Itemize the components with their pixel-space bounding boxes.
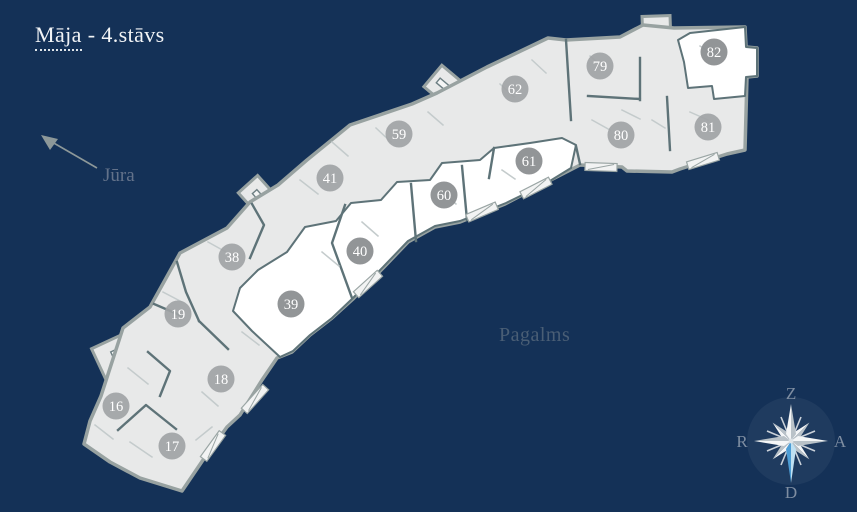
apartment-number: 81: [701, 120, 716, 136]
apartment-marker-59[interactable]: 59: [386, 121, 413, 148]
page-title: Māja - 4.stāvs: [35, 22, 165, 48]
apartment-number: 59: [392, 127, 407, 143]
sea-direction-arrow: [41, 135, 97, 168]
compass-label-south: D: [785, 483, 797, 502]
apartment-marker-61[interactable]: 61: [516, 148, 543, 175]
apartment-marker-16[interactable]: 16: [103, 393, 130, 420]
compass-rose: Z A D R: [736, 384, 847, 502]
apartment-number: 38: [225, 250, 240, 266]
compass-label-east: A: [834, 432, 847, 451]
floor-label: - 4.stāvs: [82, 22, 165, 47]
building-outline: [84, 25, 757, 491]
apartment-number: 18: [214, 372, 229, 388]
apartment-marker-19[interactable]: 19: [165, 301, 192, 328]
apartment-number: 80: [614, 128, 629, 144]
apartment-number: 82: [707, 45, 722, 61]
apartment-marker-60[interactable]: 60: [431, 182, 458, 209]
apartment-number: 62: [508, 82, 523, 98]
apartment-marker-40[interactable]: 40: [347, 238, 374, 265]
apartment-number: 41: [323, 171, 338, 187]
apartment-number: 61: [522, 154, 537, 170]
apartment-marker-81[interactable]: 81: [695, 114, 722, 141]
apartment-number: 19: [171, 307, 186, 323]
apartment-number: 16: [109, 399, 124, 415]
apartment-marker-39[interactable]: 39: [278, 291, 305, 318]
apartment-number: 60: [437, 188, 452, 204]
compass-label-north: Z: [786, 384, 796, 403]
apartment-marker-38[interactable]: 38: [219, 244, 246, 271]
floorplan-viewer: 16171819383940415960616279808182: [0, 0, 857, 512]
apartment-marker-62[interactable]: 62: [502, 76, 529, 103]
apartment-marker-80[interactable]: 80: [608, 122, 635, 149]
floorplan-canvas: 16171819383940415960616279808182: [0, 0, 857, 512]
apartment-number: 39: [284, 297, 299, 313]
apartment-marker-18[interactable]: 18: [208, 366, 235, 393]
apartment-marker-82[interactable]: 82: [701, 39, 728, 66]
apartment-marker-79[interactable]: 79: [587, 53, 614, 80]
apartment-number: 79: [593, 59, 608, 75]
apartment-marker-17[interactable]: 17: [159, 433, 186, 460]
apartment-number: 40: [353, 244, 368, 260]
building-link[interactable]: Māja: [35, 22, 82, 51]
compass-label-west: R: [736, 432, 748, 451]
apartment-number: 17: [165, 439, 180, 455]
apartment-marker-41[interactable]: 41: [317, 165, 344, 192]
